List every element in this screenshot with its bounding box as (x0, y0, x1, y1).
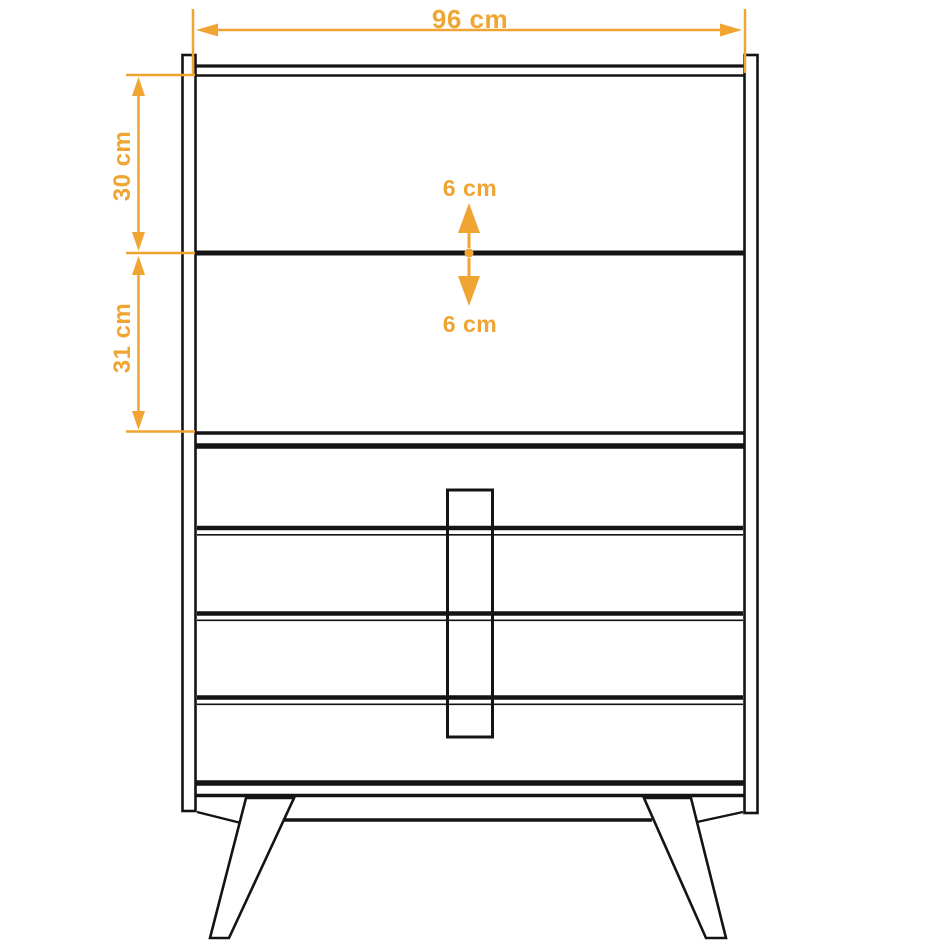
cabinet-right-panel (745, 55, 758, 813)
clearance-below-label: 6 cm (443, 311, 497, 337)
pivot-dot-icon (465, 249, 474, 258)
clearance-above-label: 6 cm (443, 175, 497, 201)
upper-height-dimension-label: 30 cm (109, 131, 136, 202)
diagram-svg: 96 cm 30 cm 31 cm 6 cm 6 cm (0, 0, 940, 940)
furniture-dimension-diagram: 96 cm 30 cm 31 cm 6 cm 6 cm (0, 0, 940, 940)
width-dimension-label: 96 cm (432, 4, 508, 34)
cabinet-left-panel (183, 55, 196, 811)
lower-height-dimension-label: 31 cm (109, 303, 136, 374)
diagram-background (0, 0, 940, 940)
